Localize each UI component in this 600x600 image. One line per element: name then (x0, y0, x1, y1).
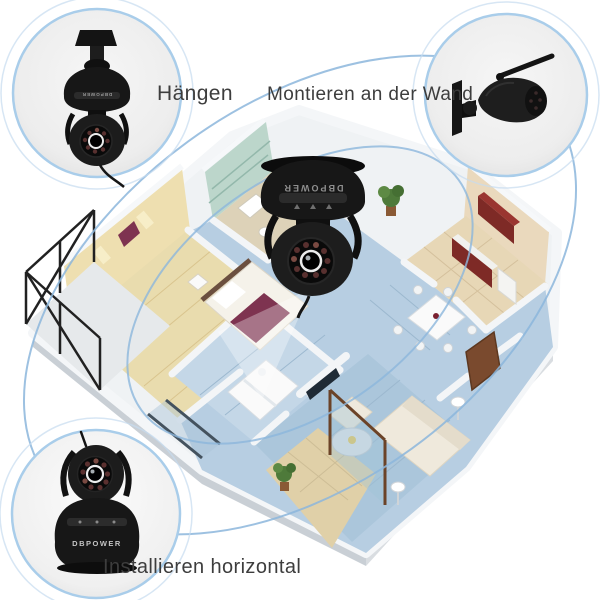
brand-logo-horizontal: DBPOWER (72, 539, 122, 548)
brand-logo-hang: DBPOWER (82, 92, 113, 97)
brand-logo-center: DBPOWER (283, 183, 344, 193)
camera-lens (301, 251, 321, 271)
hang-camera-lens (89, 134, 103, 148)
horizontal-camera-lens (87, 466, 103, 482)
label-hang: Hängen (157, 82, 233, 106)
label-install-horizontal: Installieren horizontal (103, 556, 301, 579)
wall-camera-face (525, 86, 547, 116)
ceiling-bracket (75, 30, 117, 46)
product-infographic: DBPOWER DBPOWER (0, 0, 600, 600)
label-wall-mount: Montieren an der Wand (267, 84, 473, 106)
